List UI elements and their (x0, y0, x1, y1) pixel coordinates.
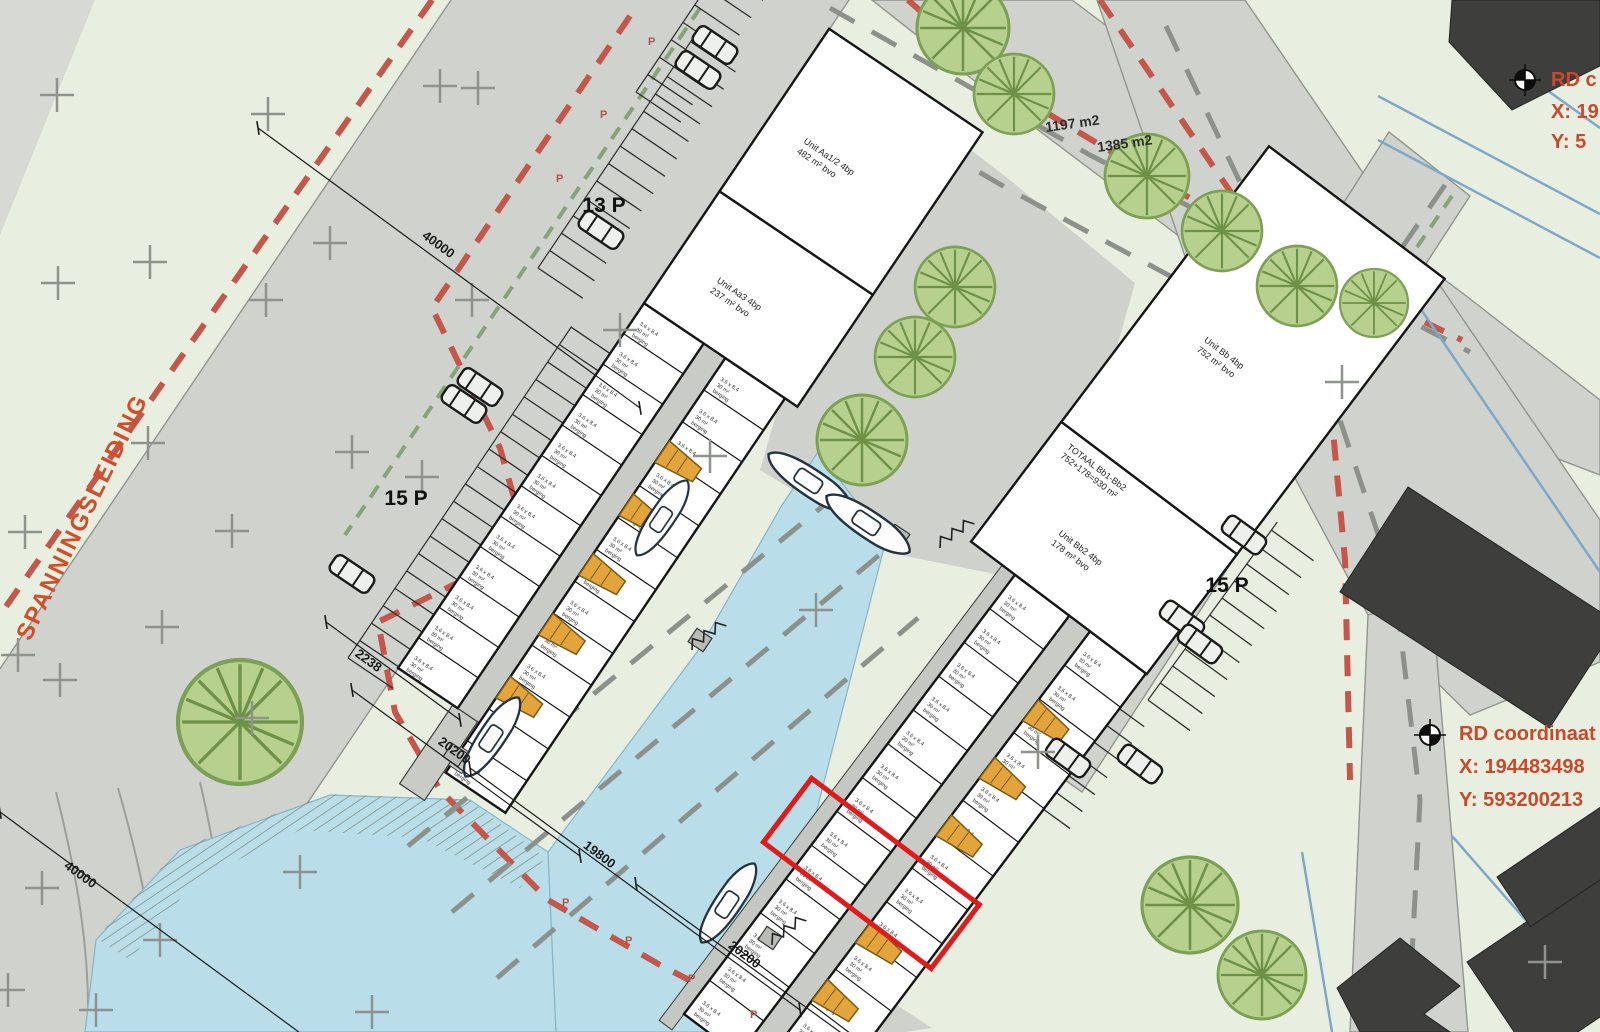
boundary-p-marker: P (556, 173, 563, 185)
tree-icon (915, 247, 995, 327)
rd-top-title: RD c (1551, 69, 1597, 91)
tree-icon (875, 317, 955, 397)
tree-icon (1218, 931, 1306, 1019)
boundary-p-marker: P (750, 1009, 757, 1021)
site-plan-page: 3.6 x 8.430 m²berging3.6 x 8.430 m²bergi… (0, 0, 1600, 1032)
boundary-p-marker: P (648, 36, 655, 48)
rd-top-x: X: 19 (1551, 101, 1599, 123)
rd-coordinate-block-right: RD coordinaat X: 194483498 Y: 593200213 (1459, 723, 1596, 811)
parking-count-15-right: 15 P (1205, 574, 1248, 597)
tree-icon (178, 660, 302, 784)
tree-icon (817, 395, 907, 485)
boundary-p-marker: P (562, 897, 569, 909)
rd-right-title: RD coordinaat (1459, 723, 1596, 745)
boundary-p-marker: P (688, 973, 695, 985)
tree-icon (1257, 246, 1337, 326)
tree-icon (1182, 191, 1262, 271)
boundary-p-marker: P (600, 109, 607, 121)
rd-top-y: Y: 5 (1551, 131, 1586, 153)
boundary-p-marker: P (625, 935, 632, 947)
tree-icon (1340, 269, 1408, 337)
parking-count-13: 13 P (582, 194, 625, 217)
tree-icon (1142, 857, 1238, 953)
rd-right-x: X: 194483498 (1459, 756, 1585, 778)
parking-count-15-left: 15 P (384, 487, 427, 510)
rd-right-y: Y: 593200213 (1459, 789, 1583, 811)
tree-icon (974, 54, 1054, 134)
site-plan-drawing: 3.6 x 8.430 m²berging3.6 x 8.430 m²bergi… (0, 0, 1600, 1032)
